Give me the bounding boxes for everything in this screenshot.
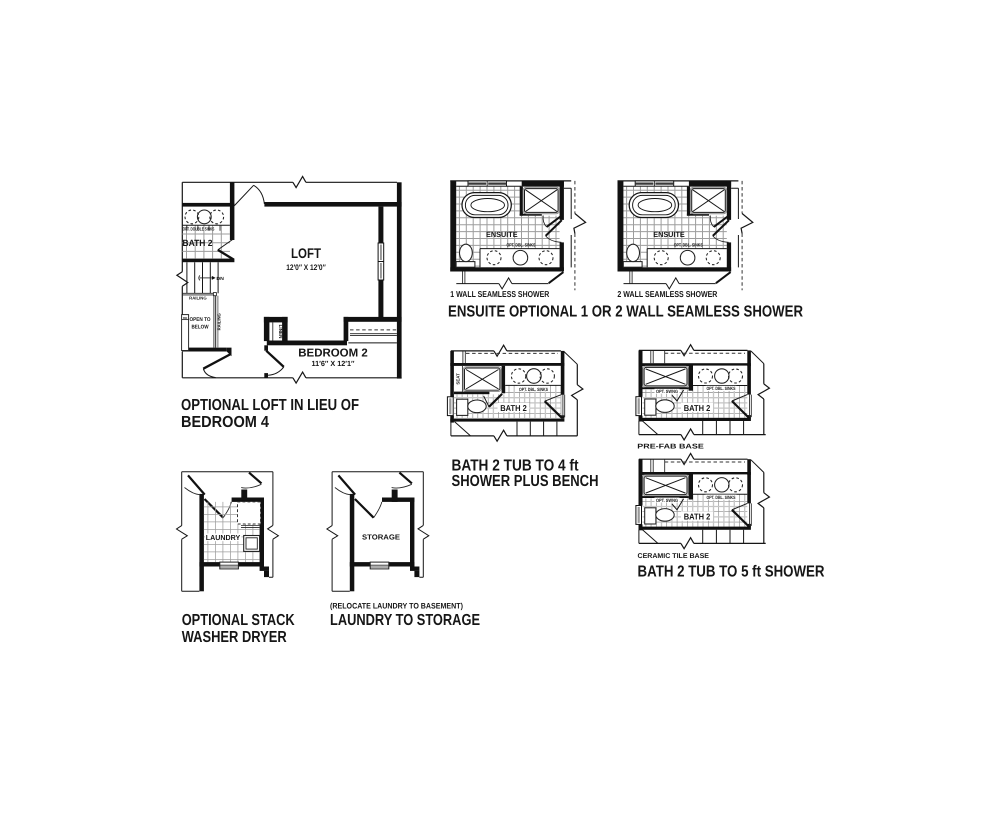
svg-text:BATH 2 TUB TO 4 ft: BATH 2 TUB TO 4 ft [452, 457, 580, 474]
svg-text:RAILING: RAILING [189, 296, 207, 301]
svg-text:LAUNDRY TO STORAGE: LAUNDRY TO STORAGE [330, 612, 480, 629]
svg-text:SEAT: SEAT [456, 373, 461, 385]
svg-text:(RELOCATE LAUNDRY TO BASEMENT): (RELOCATE LAUNDRY TO BASEMENT) [330, 602, 463, 611]
svg-text:SHOWER PLUS BENCH: SHOWER PLUS BENCH [452, 473, 599, 490]
svg-text:OPT. DBL. SINKS: OPT. DBL. SINKS [519, 387, 548, 392]
svg-text:2 WALL SEAMLESS SHOWER: 2 WALL SEAMLESS SHOWER [617, 289, 718, 299]
svg-text:BATH 2: BATH 2 [500, 403, 527, 413]
svg-text:OPTIONAL LOFT IN LIEU OF: OPTIONAL LOFT IN LIEU OF [181, 397, 359, 414]
svg-text:BEDROOM 2: BEDROOM 2 [298, 347, 368, 359]
svg-text:BEDROOM 4: BEDROOM 4 [181, 414, 269, 431]
svg-text:1 WALL SEAMLESS SHOWER: 1 WALL SEAMLESS SHOWER [450, 289, 550, 299]
svg-text:OPTIONAL STACK: OPTIONAL STACK [182, 612, 295, 629]
svg-text:BATH 2 TUB TO 5 ft SHOWER: BATH 2 TUB TO 5 ft SHOWER [638, 564, 825, 581]
svg-text:BELOW: BELOW [192, 324, 210, 330]
svg-text:ENSUITE OPTIONAL 1 OR 2 WALL S: ENSUITE OPTIONAL 1 OR 2 WALL SEAMLESS SH… [448, 303, 803, 320]
svg-text:OPEN TO: OPEN TO [190, 317, 211, 323]
svg-text:LAUNDRY: LAUNDRY [206, 533, 241, 542]
svg-text:BATH 2: BATH 2 [183, 238, 213, 248]
svg-text:12′0″ X 12′0″: 12′0″ X 12′0″ [286, 263, 326, 272]
svg-text:CERAMIC TILE BASE: CERAMIC TILE BASE [638, 553, 710, 560]
svg-text:LOFT: LOFT [291, 245, 321, 261]
svg-text:WASHER DRYER: WASHER DRYER [182, 629, 287, 646]
svg-text:RAILING: RAILING [217, 313, 222, 330]
svg-text:STORAGE: STORAGE [362, 532, 400, 541]
svg-text:11′6″ X 12′1″: 11′6″ X 12′1″ [312, 359, 355, 368]
svg-text:OPT. DOUBLE SINKS: OPT. DOUBLE SINKS [183, 227, 215, 232]
svg-text:DN: DN [216, 276, 224, 281]
svg-text:PRE-FAB BASE: PRE-FAB BASE [637, 443, 704, 450]
svg-text:LINEN: LINEN [278, 325, 283, 339]
